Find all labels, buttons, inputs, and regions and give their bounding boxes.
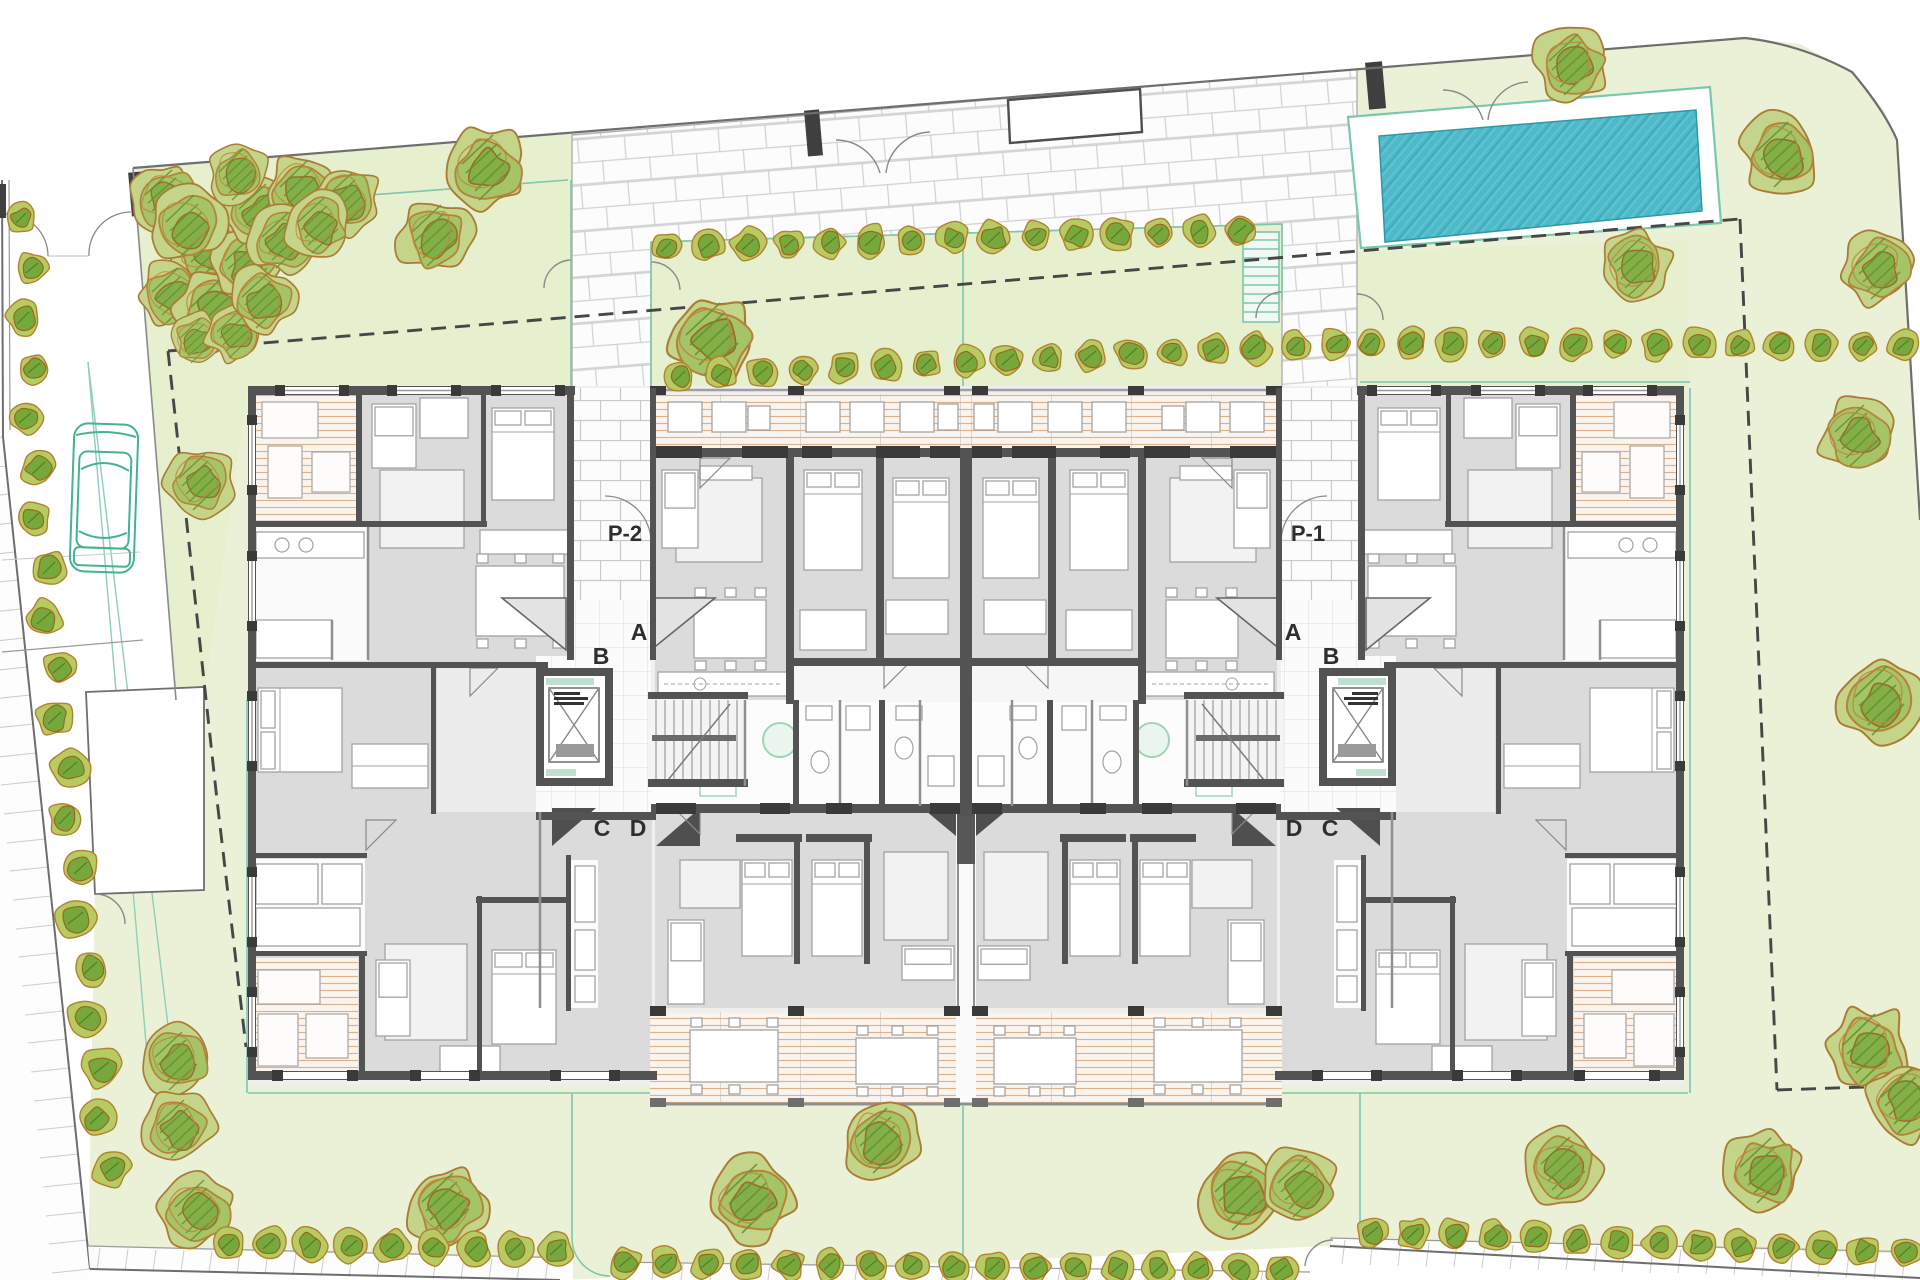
svg-text:P-2: P-2 bbox=[608, 521, 642, 546]
svg-text:P-1: P-1 bbox=[1291, 521, 1325, 546]
svg-text:C: C bbox=[594, 815, 611, 841]
svg-text:B: B bbox=[1323, 643, 1340, 669]
svg-text:D: D bbox=[1286, 815, 1303, 841]
svg-text:A: A bbox=[631, 619, 648, 645]
svg-text:C: C bbox=[1322, 815, 1339, 841]
svg-text:A: A bbox=[1285, 619, 1302, 645]
svg-text:B: B bbox=[593, 643, 610, 669]
svg-text:D: D bbox=[630, 815, 647, 841]
